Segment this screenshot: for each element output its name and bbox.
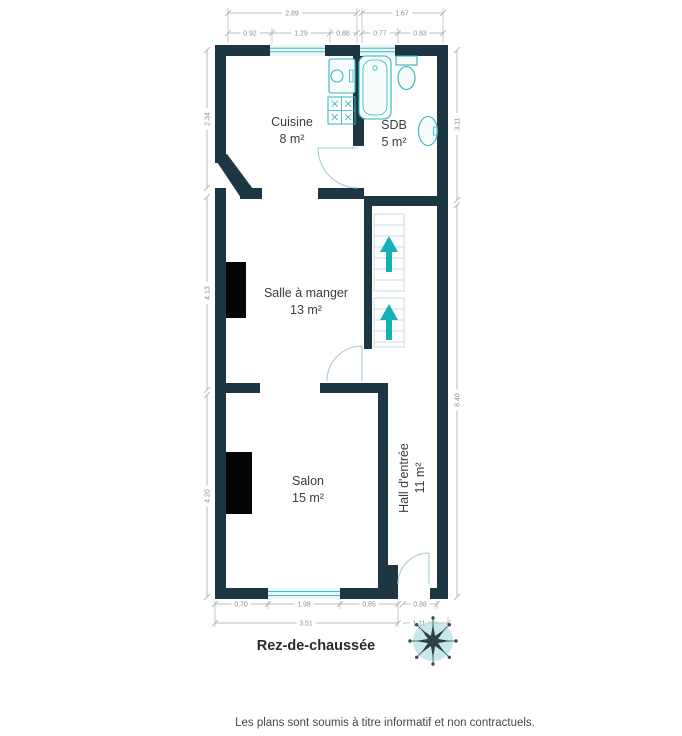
dimensions-bottom: 0.70 1.98 0.85 0.88 3.51 1.11 — [212, 600, 451, 628]
room-area: 11 m² — [413, 462, 427, 493]
stairs-up-arrow-icon — [380, 236, 398, 272]
room-label: SDB — [381, 118, 407, 132]
dimensions-right: 3.11 8.40 — [453, 47, 462, 600]
dimension-label: 0.77 — [373, 31, 387, 38]
bathtub-icon — [359, 56, 391, 119]
dimension-label: 0.70 — [234, 602, 248, 609]
room-area: 5 m² — [382, 135, 407, 149]
dimension-label: 2.89 — [285, 11, 299, 18]
door-arc — [398, 553, 429, 584]
door-arc — [327, 346, 362, 381]
dimension-label: 0.88 — [336, 31, 350, 38]
room-salon: Salon 15 m² — [292, 474, 324, 505]
floor-plan: Cuisine 8 m² SDB 5 m² Salle à manger 13 … — [0, 0, 682, 736]
floor-plan-page: Cuisine 8 m² SDB 5 m² Salle à manger 13 … — [0, 0, 682, 736]
dimension-label: 2.34 — [205, 112, 212, 126]
disclaimer-text: Les plans sont soumis à titre informatif… — [235, 717, 535, 729]
stove-icon — [328, 97, 355, 124]
window — [268, 588, 340, 599]
room-salle-a-manger: Salle à manger 13 m² — [264, 286, 348, 317]
fireplace — [226, 262, 246, 318]
window — [360, 45, 395, 56]
dimension-label: 1.67 — [395, 11, 409, 18]
room-area: 15 m² — [292, 491, 324, 505]
dimension-label: 0.85 — [362, 602, 376, 609]
dimension-label: 0.88 — [413, 602, 427, 609]
window — [270, 45, 325, 56]
door-arc — [318, 148, 358, 188]
dimension-label: 1.29 — [294, 31, 308, 38]
room-cuisine: Cuisine 8 m² — [271, 115, 313, 146]
room-label: Hall d'entrée — [397, 443, 411, 513]
fireplace — [226, 452, 252, 514]
dimension-label: 0.92 — [243, 31, 257, 38]
dimensions-top: 2.89 1.67 0.92 1.29 0.88 0.77 0.83 — [225, 8, 446, 43]
kitchen-sink-icon — [329, 59, 355, 93]
dimension-label: 8.40 — [455, 393, 462, 407]
toilet-icon — [396, 56, 417, 90]
walls — [215, 45, 448, 599]
room-area: 13 m² — [290, 303, 322, 317]
room-label: Cuisine — [271, 115, 313, 129]
room-sdb: SDB 5 m² — [381, 118, 407, 149]
room-label: Salon — [292, 474, 324, 488]
page-title: Rez-de-chaussée — [257, 638, 375, 654]
dimension-label: 4.20 — [205, 489, 212, 503]
dimension-label: 0.83 — [413, 31, 427, 38]
room-area: 8 m² — [280, 132, 305, 146]
doors — [318, 148, 429, 584]
room-hall: Hall d'entrée 11 m² — [397, 443, 427, 513]
dimensions-left: 2.34 4.13 4.20 — [203, 47, 212, 600]
dimension-label: 3.11 — [455, 117, 462, 130]
stairs — [374, 214, 404, 347]
compass-rose-icon — [408, 616, 457, 665]
washbasin-icon — [419, 117, 438, 146]
dimension-label: 4.13 — [205, 286, 212, 300]
dimension-label: 1.98 — [297, 602, 311, 609]
dimension-label: 3.51 — [299, 621, 313, 628]
room-label: Salle à manger — [264, 286, 348, 300]
